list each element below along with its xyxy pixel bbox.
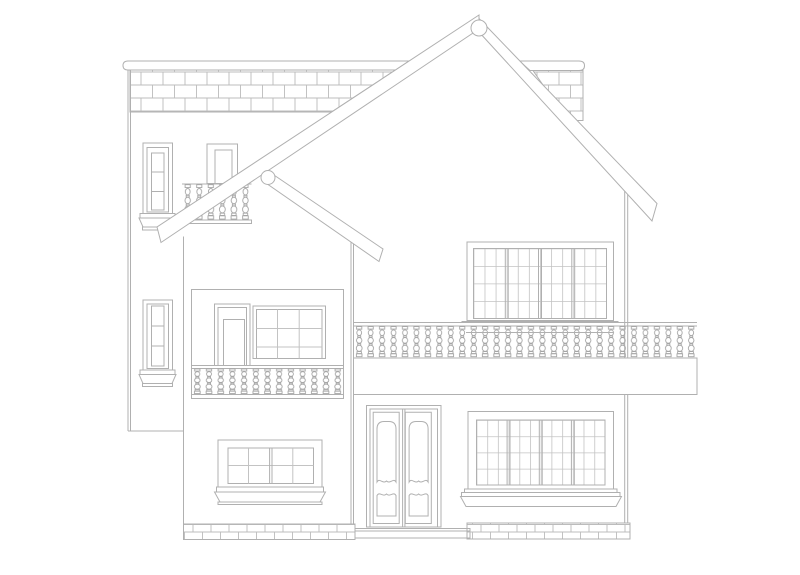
- window-glass: [152, 306, 165, 366]
- window-sill: [140, 214, 175, 219]
- roof-apex-joint-large: [471, 20, 487, 36]
- left-wing: [184, 237, 356, 540]
- wing-brick-plinth: [184, 524, 356, 540]
- cornice-right: [520, 61, 585, 71]
- wing-upper-window: [253, 306, 326, 359]
- door-panel: [215, 150, 232, 184]
- window-sill: [140, 370, 175, 375]
- main-entrance-door: [367, 406, 442, 528]
- balcony-slab: [354, 358, 698, 395]
- main-block: [354, 187, 698, 539]
- wing-balustrade: [192, 366, 344, 399]
- window-sill: [461, 489, 622, 507]
- window-glass-dividers: [152, 326, 165, 346]
- rear-upper-window: [139, 143, 176, 230]
- window-glass-dividers: [152, 172, 165, 192]
- roof-apex-joint-small: [261, 171, 275, 185]
- door-threshold-step: [355, 529, 470, 539]
- main-brick-plinth: [467, 523, 630, 539]
- house-elevation-drawing: [0, 0, 800, 575]
- balustrade-base: [192, 395, 344, 399]
- main-lower-window: [461, 412, 622, 507]
- cornice-left: [123, 61, 409, 70]
- window-glass: [152, 153, 165, 210]
- balustrade-top-rail: [192, 366, 344, 369]
- main-balcony: [354, 322, 698, 395]
- house-elevation-canvas: [0, 0, 800, 575]
- wing-lower-window: [215, 440, 326, 505]
- window-sill: [217, 487, 324, 492]
- door-panel: [224, 320, 245, 366]
- wing-rafter-beam: [268, 171, 383, 262]
- window-grid: [228, 448, 314, 484]
- balusters: [192, 369, 344, 395]
- window-grid: [257, 310, 323, 359]
- rear-left-wall-edge: [128, 70, 131, 431]
- right-rafter-beam: [479, 19, 657, 222]
- main-upper-window: [467, 242, 614, 321]
- wing-balcony-door: [215, 304, 251, 366]
- roof: [157, 15, 657, 262]
- balcony-balusters: [354, 326, 698, 358]
- balcony-top-rail: [354, 323, 698, 327]
- rear-lower-window: [139, 300, 176, 387]
- elevation-root: [123, 15, 697, 540]
- wing-upper-window-group: [192, 290, 344, 399]
